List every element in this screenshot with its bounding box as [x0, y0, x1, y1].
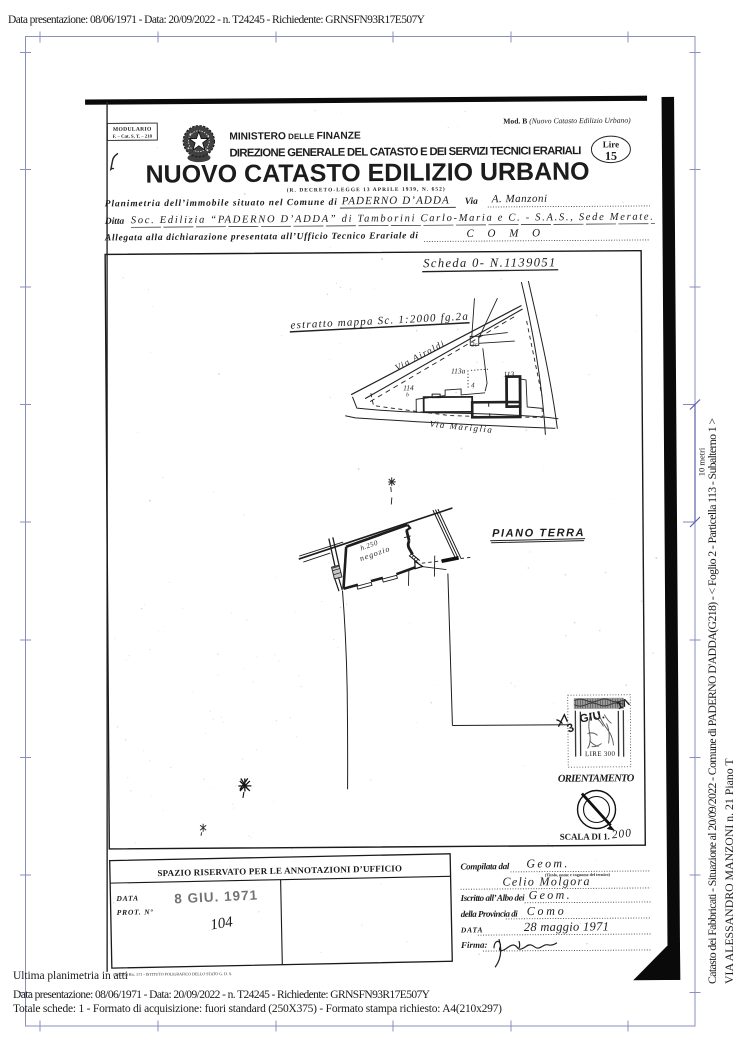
svg-text:Celio Molgora: Celio Molgora — [502, 874, 590, 889]
svg-text:della Provincia di: della Provincia di — [461, 909, 519, 919]
svg-text:Ultima planimetria in atti: Ultima planimetria in atti — [13, 970, 128, 982]
svg-text:Catasto dei Fabbricati - Situa: Catasto dei Fabbricati - Situazione al 2… — [705, 418, 719, 984]
svg-text:SCALA DI 1.: SCALA DI 1. — [560, 831, 611, 841]
svg-text:Geom.: Geom. — [526, 856, 568, 870]
svg-text:Compilata dal: Compilata dal — [460, 861, 510, 871]
svg-text:A. Manzoni: A. Manzoni — [491, 193, 548, 205]
svg-text:4: 4 — [471, 381, 475, 389]
svg-text:PIANO TERRA: PIANO TERRA — [492, 527, 585, 540]
svg-text:F. – Cat. S. T. – 218: F. – Cat. S. T. – 218 — [113, 135, 153, 140]
svg-text:ORIENTAMENTO: ORIENTAMENTO — [558, 773, 635, 785]
svg-text:Via: Via — [465, 197, 478, 207]
svg-text:(R. DECRETO-LEGGE 13 APRILE 19: (R. DECRETO-LEGGE 13 APRILE 1939, N. 652… — [287, 186, 445, 194]
svg-text:Como: Como — [527, 904, 565, 918]
svg-text:Totale schede: 1 - Formato di: Totale schede: 1 - Formato di acquisizio… — [13, 1003, 502, 1015]
svg-text:Iscritto all’ Albo dei: Iscritto all’ Albo dei — [460, 892, 526, 902]
svg-text:MODULARIO: MODULARIO — [113, 127, 152, 133]
svg-text:DATA: DATA — [115, 894, 139, 903]
svg-text:NUOVO CATASTO EDILIZIO URBANO: NUOVO CATASTO EDILIZIO URBANO — [145, 158, 589, 189]
svg-text:Mod. B (Nuovo Catasto Edilizio: Mod. B (Nuovo Catasto Edilizio Urbano) — [503, 116, 631, 126]
svg-text:Data presentazione: 08/06/1971: Data presentazione: 08/06/1971 - Data: 2… — [8, 14, 426, 26]
svg-text:200: 200 — [611, 827, 632, 841]
svg-text:113a: 113a — [451, 366, 466, 375]
svg-text:Ditta: Ditta — [104, 217, 125, 227]
svg-text:b: b — [406, 392, 409, 398]
svg-text:113: 113 — [503, 370, 514, 379]
svg-text:15: 15 — [605, 149, 617, 163]
svg-text:PROT. Nº: PROT. Nº — [117, 907, 154, 917]
svg-text:114: 114 — [403, 383, 414, 392]
svg-text:2c: 2c — [471, 341, 477, 348]
svg-text:PADERNO D’ADDA: PADERNO D’ADDA — [341, 195, 450, 208]
svg-text:DATA: DATA — [460, 925, 483, 934]
svg-text:Firma:: Firma: — [460, 940, 488, 950]
svg-text:28 maggio 1971: 28 maggio 1971 — [524, 919, 610, 934]
svg-text:MINISTERO DELLE FINANZE: MINISTERO DELLE FINANZE — [229, 131, 361, 143]
svg-text:VIA ALESSANDRO MANZONI n. 21 P: VIA ALESSANDRO MANZONI n. 21 Piano T — [722, 758, 736, 984]
svg-text:C O M O: C O M O — [466, 227, 545, 240]
svg-text:Geom.: Geom. — [529, 888, 571, 902]
svg-text:Data presentazione: 08/06/1971: Data presentazione: 08/06/1971 - Data: 2… — [13, 989, 431, 1001]
svg-text:Scheda 0- N.1139051: Scheda 0- N.1139051 — [423, 255, 556, 270]
svg-text:Planimetria dell’immobile situ: Planimetria dell’immobile situato nel Co… — [105, 198, 337, 210]
svg-text:LIRE 300: LIRE 300 — [585, 750, 615, 758]
svg-text:(501570) Ric. 571 - ISTITUTO P: (501570) Ric. 571 - ISTITUTO POLIGRAFICO… — [113, 971, 232, 977]
